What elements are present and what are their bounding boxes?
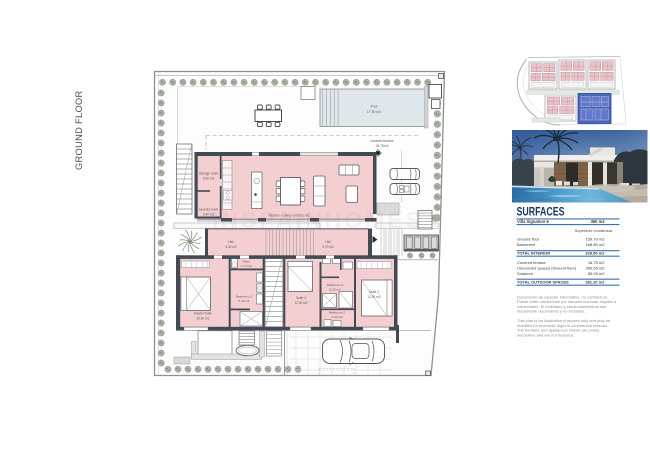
svg-text:Hall: Hall (325, 240, 331, 244)
svg-text:Superficie construida: Superficie construida (575, 228, 613, 233)
svg-text:18.75m2: 18.75m2 (376, 144, 389, 148)
svg-text:5.40 m2: 5.40 m2 (238, 299, 249, 303)
svg-text:12.30 m2: 12.30 m2 (294, 301, 308, 305)
svg-text:2.30 m2: 2.30 m2 (331, 315, 342, 319)
svg-text:Toilet: Toilet (242, 260, 249, 264)
svg-text:360 m2: 360 m2 (591, 219, 606, 224)
svg-text:TOTAL INTERIOR: TOTAL INTERIOR (517, 251, 550, 256)
svg-text:168.80 m2: 168.80 m2 (586, 242, 606, 247)
svg-text:meramente decorativos y no inc: meramente decorativos y no incluidos. (517, 309, 585, 314)
svg-text:Ground floor: Ground floor (517, 237, 540, 242)
svg-text:5.30 m2: 5.30 m2 (329, 288, 340, 292)
svg-text:1.70 m2: 1.70 m2 (240, 264, 251, 268)
svg-text:12.50 m2: 12.50 m2 (367, 295, 381, 299)
svg-text:TOTAL OUTDOOR SPACES: TOTAL OUTDOOR SPACES (517, 279, 569, 284)
svg-text:9.70 m2: 9.70 m2 (322, 245, 334, 249)
svg-text:381.20 m2: 381.20 m2 (585, 279, 605, 284)
svg-text:Bathroom 3: Bathroom 3 (327, 283, 343, 287)
svg-text:Suite 2: Suite 2 (369, 290, 379, 294)
svg-text:4.40 m2: 4.40 m2 (225, 245, 237, 249)
svg-text:Storage room: Storage room (199, 172, 219, 176)
svg-text:306.55 m2: 306.55 m2 (586, 265, 606, 270)
svg-text:decorative and are not include: decorative and are not included. (517, 332, 574, 337)
svg-text:328.50 m2: 328.50 m2 (585, 251, 605, 256)
svg-text:Bathroom 2: Bathroom 2 (236, 295, 252, 299)
svg-text:Hall: Hall (228, 240, 234, 244)
svg-text:55.90 m2: 55.90 m2 (588, 271, 605, 276)
svg-text:5.90 m2: 5.90 m2 (203, 177, 215, 181)
svg-text:covered terrace: covered terrace (371, 139, 394, 143)
svg-text:INSPAINHOMES: INSPAINHOMES (212, 207, 424, 233)
svg-text:Villa Signature 6: Villa Signature 6 (517, 219, 549, 224)
svg-text:Bathroom 2: Bathroom 2 (329, 311, 345, 315)
svg-text:18.75 m2: 18.75 m2 (588, 260, 605, 265)
svg-text:Solarium: Solarium (517, 271, 533, 276)
svg-text:Master Suite: Master Suite (194, 312, 212, 316)
svg-text:17.50 m2: 17.50 m2 (367, 110, 381, 114)
svg-text:15.60 m2: 15.60 m2 (196, 317, 210, 321)
svg-text:Uncovered spaces (Ground floor: Uncovered spaces (Ground floor) (517, 265, 577, 270)
svg-text:Covered terrace: Covered terrace (517, 260, 546, 265)
svg-text:Suite 3: Suite 3 (296, 296, 306, 300)
svg-text:SURFACES: SURFACES (517, 206, 565, 218)
svg-text:Pool: Pool (371, 105, 378, 109)
svg-text:Basement: Basement (517, 242, 536, 247)
svg-text:159.70 m2: 159.70 m2 (586, 237, 606, 242)
